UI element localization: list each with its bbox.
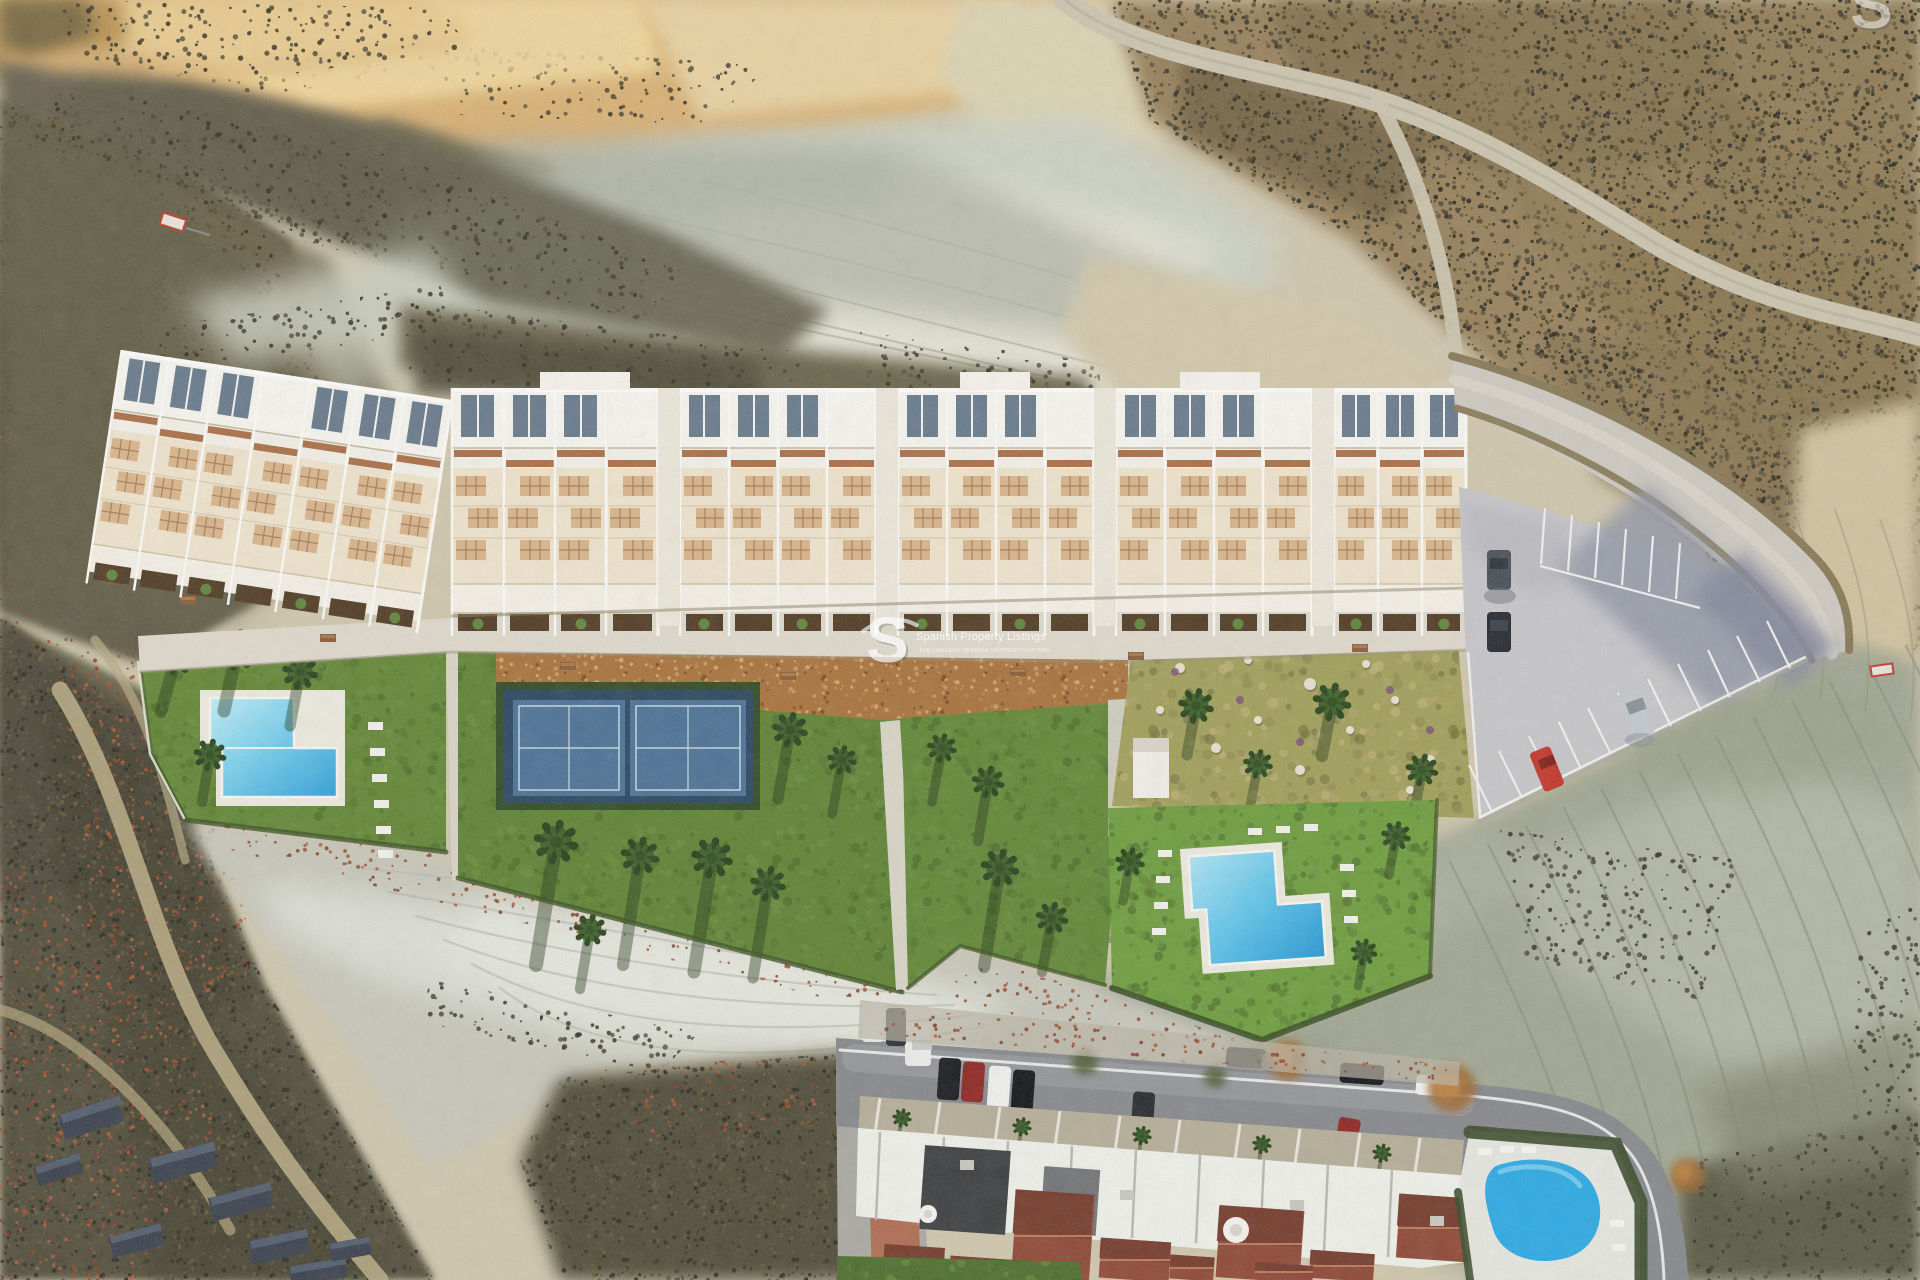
svg-text:S: S	[866, 604, 909, 676]
svg-text:Spanish Property Listings: Spanish Property Listings	[916, 631, 1046, 643]
svg-text:S: S	[1850, 0, 1893, 42]
svg-text:THE LARGEST SPANISH PROPERTY L: THE LARGEST SPANISH PROPERTY LISTING	[919, 648, 1050, 654]
